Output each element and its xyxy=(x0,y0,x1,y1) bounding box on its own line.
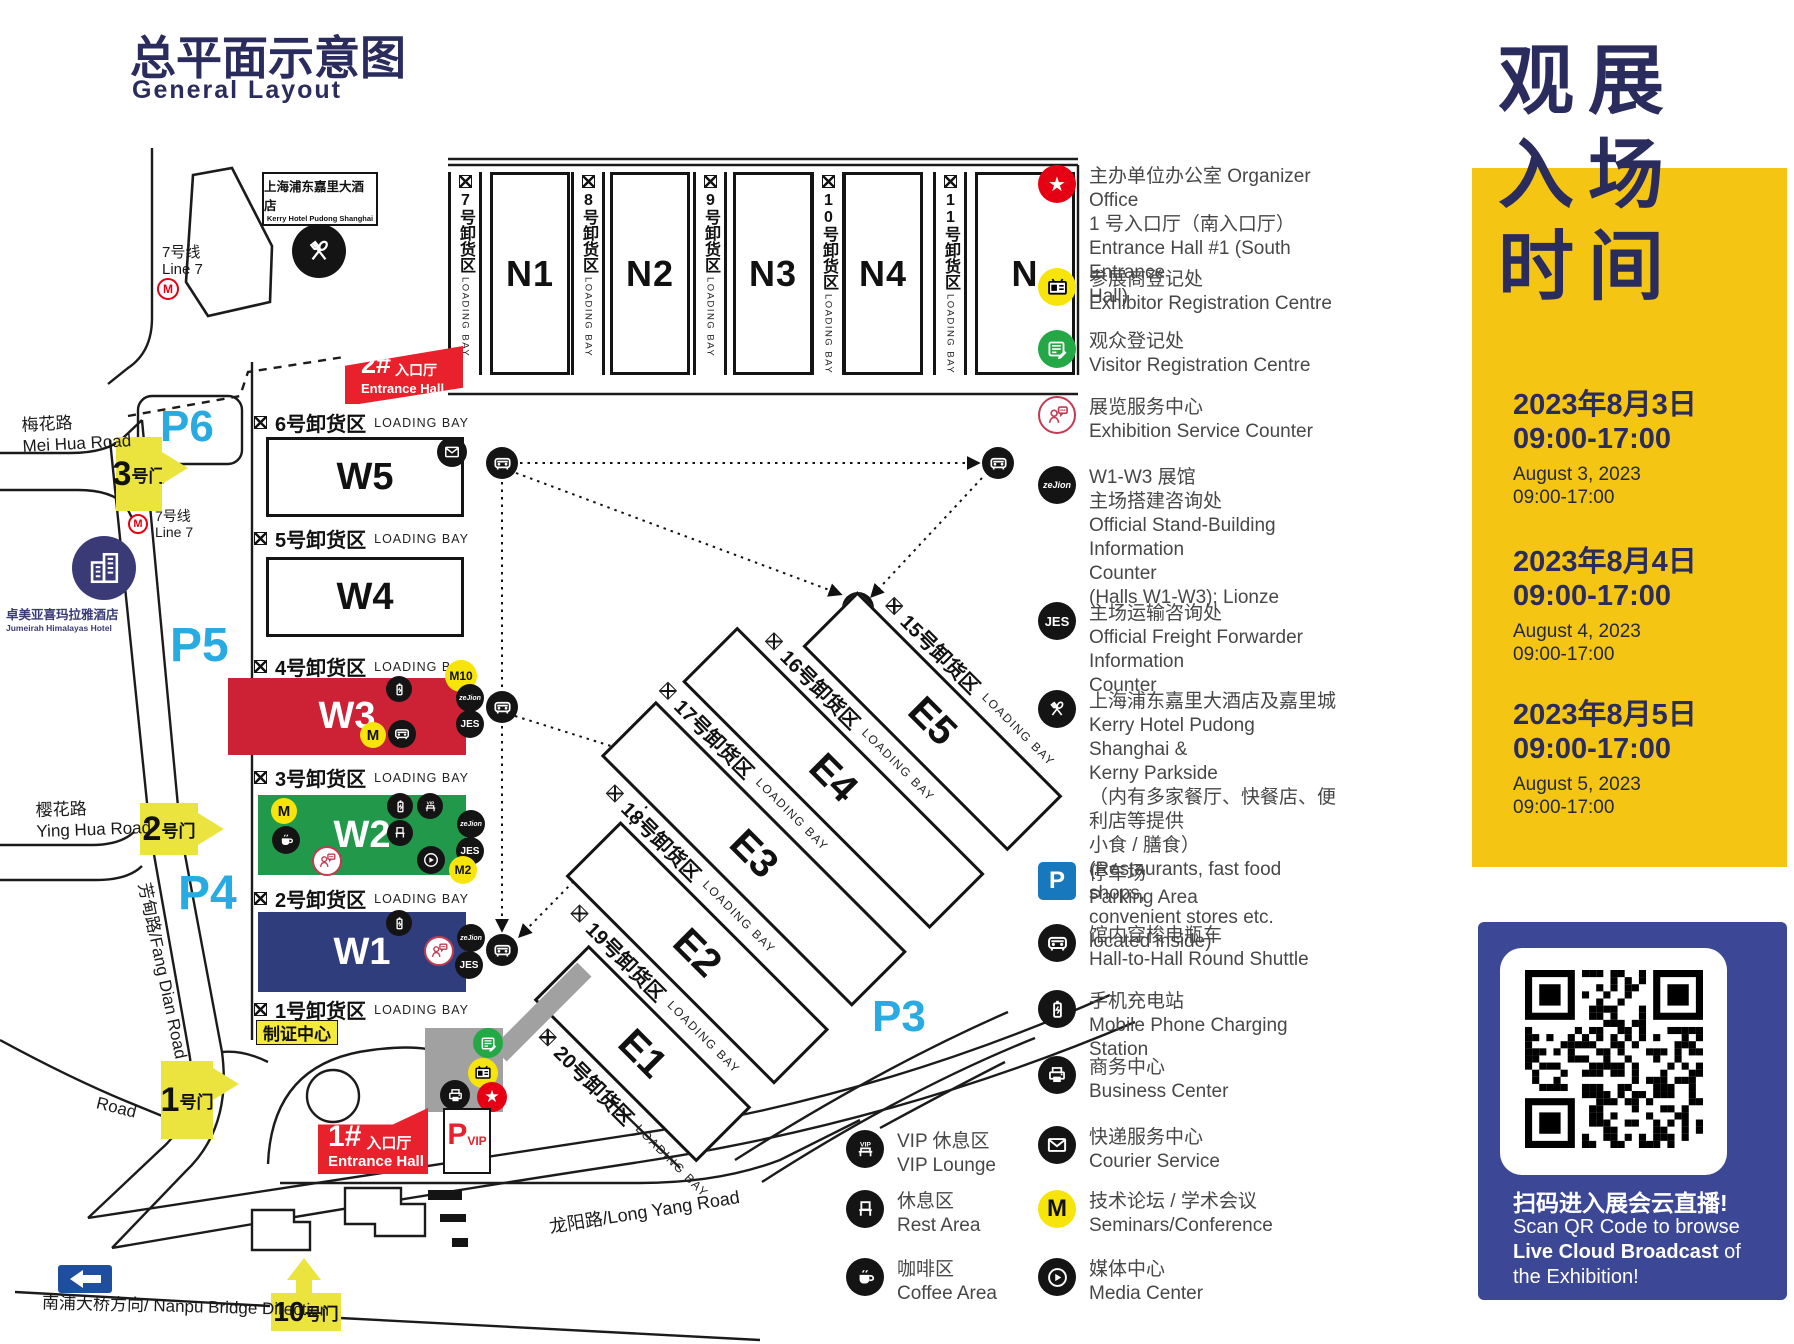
charging-icon xyxy=(386,676,412,702)
qr-panel: 扫码进入展会云直播! Scan QR Code to browse Live C… xyxy=(1478,922,1787,1300)
jes-badge: JES xyxy=(1038,602,1076,640)
zejion-badge: zeJion xyxy=(457,810,485,838)
vip-lounge-icon xyxy=(417,793,443,819)
loading-bay-9: 9号卸货区LOADING BAY xyxy=(693,172,727,375)
gate-3-arrow xyxy=(162,452,188,484)
visitor-registration-icon xyxy=(473,1028,503,1058)
parking-p4: P4 xyxy=(178,866,237,921)
zejion-badge: zeJion xyxy=(1038,466,1076,504)
shuttle-icon xyxy=(388,720,416,748)
legend-item-seminars: M技术论坛 / 学术会议 Seminars/Conference xyxy=(1038,1190,1339,1238)
qr-caption-en1: Scan QR Code to browse xyxy=(1513,1216,1740,1239)
seminar-badge-m: M xyxy=(360,722,386,748)
legend-item-exhibitor-registration: 参展商登记处 Exhibitor Registration Centre xyxy=(1038,268,1339,316)
loading-bay-7: 7号卸货区LOADING BAY xyxy=(448,172,482,375)
bay-gate-icon xyxy=(659,681,677,699)
legend-item-vip-lounge: VIP 休息区 VIP Lounge xyxy=(846,1130,1047,1178)
rest-area-icon xyxy=(387,820,413,846)
shuttle-icon xyxy=(1038,924,1076,962)
shuttle-stop-icon xyxy=(982,447,1014,479)
bay-gate-icon xyxy=(885,596,903,614)
parking-p3: P3 xyxy=(872,992,926,1042)
parking-p6: P6 xyxy=(160,402,214,452)
arrow-left-icon xyxy=(70,1270,83,1288)
parking-icon: P xyxy=(1038,862,1076,900)
seminar-badge-m: M xyxy=(271,798,297,824)
bay-gate-icon xyxy=(944,175,957,188)
organizer-star-icon: ★ xyxy=(1038,165,1076,203)
meihua-road-label: 梅花路 Mei Hua Road xyxy=(21,409,132,457)
metro-icon: M xyxy=(157,278,179,300)
loading-bay-10: 10号卸货区LOADING BAY xyxy=(811,172,845,375)
bay-gate-icon xyxy=(539,1028,557,1046)
visitor-registration-icon xyxy=(1038,330,1076,368)
session-day3: 2023年8月5日 09:00-17:00 August 5, 2023 09:… xyxy=(1513,698,1697,819)
hall-w3: W3 xyxy=(228,678,466,755)
loading-bay-5: 5号卸货区LOADING BAY xyxy=(254,524,469,553)
vip-lounge-icon xyxy=(846,1130,884,1168)
legend-item-media-center: 媒体中心 Media Center xyxy=(1038,1258,1339,1306)
exhibitor-registration-icon xyxy=(1038,268,1076,306)
business-center-icon xyxy=(1038,1056,1076,1094)
bay-gate-icon xyxy=(582,175,595,188)
bay-gate-icon xyxy=(765,632,783,650)
kerry-hotel-en: Kerry Hotel Pudong Shanghai xyxy=(267,214,373,223)
sidebar-title-line3: 时间 xyxy=(1498,230,1794,306)
shuttle-stop-icon xyxy=(486,447,518,479)
hall-w4: W4 xyxy=(266,557,464,637)
bay-gate-icon xyxy=(606,784,624,802)
sidebar-title-line1: 观展 xyxy=(1498,44,1794,120)
legend-item-freight-forwarder: JES主场运输咨询处 Official Freight Forwarder In… xyxy=(1038,602,1339,698)
legend-item-charging: 手机充电站 Mobile Phone Charging Station xyxy=(1038,990,1339,1062)
qr-code xyxy=(1500,948,1727,1175)
exhibition-service-icon xyxy=(1038,396,1076,434)
bay-gate-icon xyxy=(254,416,267,429)
shuttle-stop-icon xyxy=(486,691,518,723)
bay-gate-icon xyxy=(704,175,717,188)
line7-top-en: Line 7 xyxy=(162,261,203,278)
line7-en: Line 7 xyxy=(155,524,193,540)
jumeirah-hotel-label: 卓美亚喜玛拉雅酒店 Jumeirah Himalayas Hotel xyxy=(6,604,206,633)
bay-gate-icon xyxy=(822,175,835,188)
bay-gate-icon xyxy=(254,660,267,673)
legend-item-parking: P停车场 Parking Area xyxy=(1038,862,1339,910)
legend-item-rest-area: 休息区 Rest Area xyxy=(846,1190,1047,1238)
certificate-center: 制证中心 xyxy=(256,1020,338,1045)
session-day2: 2023年8月4日 09:00-17:00 August 4, 2023 09:… xyxy=(1513,545,1697,666)
restaurant-icon xyxy=(292,224,346,278)
page-subtitle: General Layout xyxy=(132,76,342,105)
qr-caption-en3: the Exhibition! xyxy=(1513,1266,1639,1289)
hall-n4: N4 xyxy=(843,172,923,375)
metro-icon: M xyxy=(128,514,148,534)
jumeirah-hotel-icon xyxy=(72,536,136,600)
loading-bay-3: 3号卸货区LOADING BAY xyxy=(254,763,469,792)
coffee-icon xyxy=(846,1258,884,1296)
legend-item-coffee-area: 咖啡区 Coffee Area xyxy=(846,1258,1047,1306)
gate-1-arrow xyxy=(213,1068,239,1100)
line7-label: 7号线 xyxy=(155,508,191,524)
bay-gate-icon xyxy=(254,771,267,784)
coffee-icon xyxy=(272,826,300,854)
bay-gate-icon xyxy=(459,175,472,188)
zejion-badge: zeJion xyxy=(456,684,484,712)
business-center-icon xyxy=(440,1080,470,1110)
gate-10-arrow xyxy=(287,1258,321,1280)
rest-area-icon xyxy=(846,1190,884,1228)
kerry-hotel-label: 上海浦东嘉里大酒店 Kerry Hotel Pudong Shanghai xyxy=(262,172,378,226)
charging-icon xyxy=(387,793,413,819)
qr-caption-cn: 扫码进入展会云直播! xyxy=(1513,1184,1728,1218)
session-day1: 2023年8月3日 09:00-17:00 August 3, 2023 09:… xyxy=(1513,388,1697,509)
sidebar-title-line2: 入场 xyxy=(1498,138,1794,214)
bay-gate-icon xyxy=(254,892,267,905)
legend-item-business-center: 商务中心 Business Center xyxy=(1038,1056,1339,1104)
hall-w5: W5 xyxy=(266,437,464,517)
hall-n3: N3 xyxy=(733,172,813,375)
loading-bay-6: 6号卸货区LOADING BAY xyxy=(254,408,469,437)
yinghua-road-label: 樱花路 Ying Hua Road xyxy=(35,796,151,842)
courier-icon xyxy=(437,437,467,467)
bay-gate-icon xyxy=(254,1003,267,1016)
charging-icon xyxy=(1038,990,1076,1028)
loading-bay-11: 11号卸货区LOADING BAY xyxy=(933,172,967,375)
gate-2-arrow xyxy=(198,813,224,845)
media-icon xyxy=(417,846,445,874)
loading-bay-8: 8号卸货区LOADING BAY xyxy=(571,172,605,375)
legend-item-exhibition-service: 展览服务中心 Exhibition Service Counter xyxy=(1038,396,1339,444)
hall-n2: N2 xyxy=(610,172,690,375)
legend-item-courier: 快递服务中心 Courier Service xyxy=(1038,1126,1339,1174)
legend-item-kerry-hotel: 上海浦东嘉里大酒店及嘉里城 Kerry Hotel Pudong Shangha… xyxy=(1038,690,1339,954)
legend-item-visitor-registration: 观众登记处 Visitor Registration Centre xyxy=(1038,330,1339,378)
jes-badge: JES xyxy=(456,710,484,738)
kerry-hotel-cn: 上海浦东嘉里大酒店 xyxy=(264,176,376,214)
line7-top-label: 7号线 xyxy=(162,244,200,262)
hall-n1: N1 xyxy=(490,172,570,375)
bay-gate-icon xyxy=(254,532,267,545)
exhibition-service-icon xyxy=(312,846,342,876)
general-layout-poster: 总平面示意图 General Layout 上海浦东嘉里大酒店 Kerry Ho… xyxy=(0,0,1794,1344)
legend-item-shuttle: 馆内穿梭电瓶车 Hall-to-Hall Round Shuttle xyxy=(1038,924,1339,972)
legend-item-stand-building: zeJionW1-W3 展馆 主场搭建咨询处 Official Stand-Bu… xyxy=(1038,466,1339,610)
vip-parking: PVIP xyxy=(443,1108,491,1174)
gate-1: 1号门 xyxy=(161,1061,213,1139)
restaurant-icon xyxy=(1038,690,1076,728)
bay-gate-icon xyxy=(571,904,589,922)
qr-caption-en2: Live Cloud Broadcast of xyxy=(1513,1241,1741,1264)
loading-bay-4: 4号卸货区LOADING BAY xyxy=(254,652,469,681)
